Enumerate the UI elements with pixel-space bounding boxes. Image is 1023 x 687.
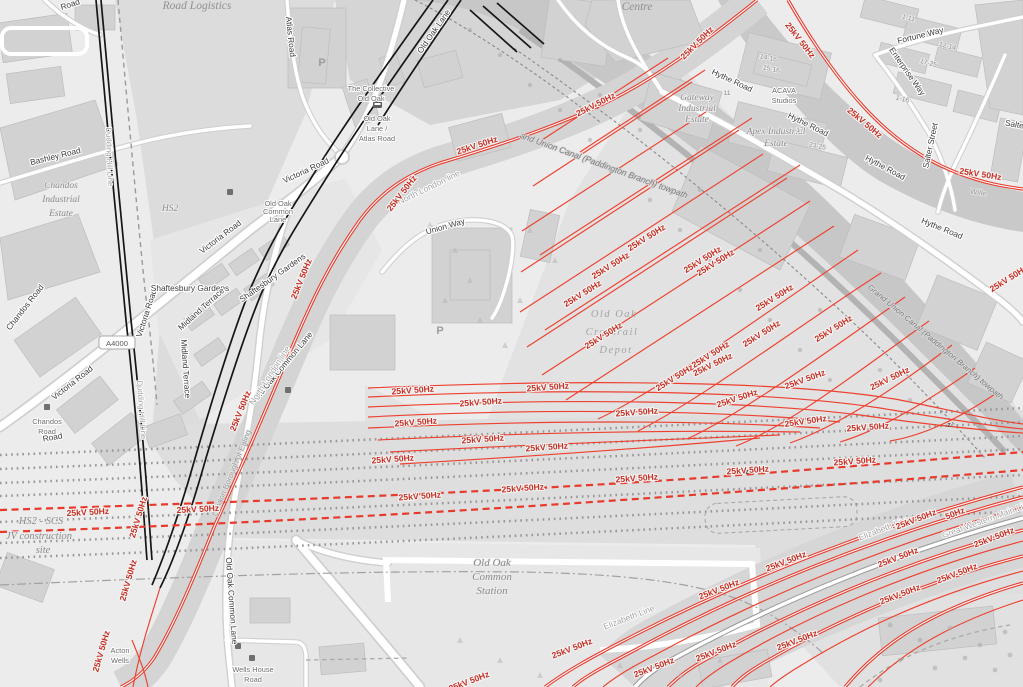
place-label-gateway-estate: Gateway: [680, 93, 715, 103]
place-label-chandos-estate: Chandos: [44, 181, 78, 191]
parking-icon: P: [436, 325, 443, 337]
street-label-wells-house-road: Road: [244, 675, 262, 684]
place-label-gateway-estate: Industrial: [677, 104, 716, 114]
place-label-apex-estate: Estate: [763, 139, 788, 149]
map-svg: P P z z Road Logistics Centre Chandos In…: [0, 0, 1023, 687]
place-label-old-oak-common-station: Common: [472, 571, 512, 583]
place-label-old-oak-common-station: Old Oak: [473, 557, 512, 569]
housenumber: 17: [796, 127, 804, 134]
road-ref-a4000-text: A4000: [106, 339, 128, 348]
place-label-chandos-estate: Industrial: [41, 195, 80, 205]
crossing-marker: z: [947, 422, 951, 429]
place-label-centre: Centre: [622, 1, 653, 13]
place-label-road-logistics: Road Logistics: [162, 0, 232, 12]
place-label-gateway-estate: Estate: [684, 115, 709, 125]
place-label-acton-wells: Acton: [111, 646, 130, 655]
stop-label-old-oak-lane: Old Oak: [363, 114, 390, 123]
poi-label-collective: Old Oak: [357, 94, 384, 103]
parking-icon: P: [318, 57, 325, 69]
poi-label-acava: ACAVA: [772, 86, 796, 95]
place-label-hs2-scs: HS2 - SCS: [18, 516, 64, 527]
place-label-hs2-scs: JV construction: [6, 531, 72, 542]
place-label-old-oak-common-station: Station: [476, 585, 508, 597]
stop-label-oocl: Lane: [270, 215, 286, 224]
map-canvas[interactable]: P P z z Road Logistics Centre Chandos In…: [0, 0, 1023, 687]
place-label-hs2-scs: site: [36, 545, 51, 556]
street-label-wells-house-road: Wells House: [232, 665, 273, 674]
place-label-hs2: HS2: [161, 204, 179, 214]
poi-label-acava: Studios: [772, 96, 797, 105]
place-label-crossrail-depot: Old Oak: [591, 309, 637, 320]
stop-label-old-oak-lane: Lane /: [367, 124, 388, 133]
road-ref-a4000: A4000: [99, 336, 135, 349]
stop-label-chandos-road: Chandos: [32, 417, 62, 426]
place-label-chandos-estate: Estate: [48, 209, 73, 219]
stop-label-old-oak-lane: Atlas Road: [359, 134, 395, 143]
poi-label-collective: The Collective: [348, 84, 395, 93]
place-label-acton-wells: Wells: [111, 656, 129, 665]
place-label-crossrail-depot: Depot: [598, 345, 632, 356]
housenumber: 11: [723, 90, 730, 97]
